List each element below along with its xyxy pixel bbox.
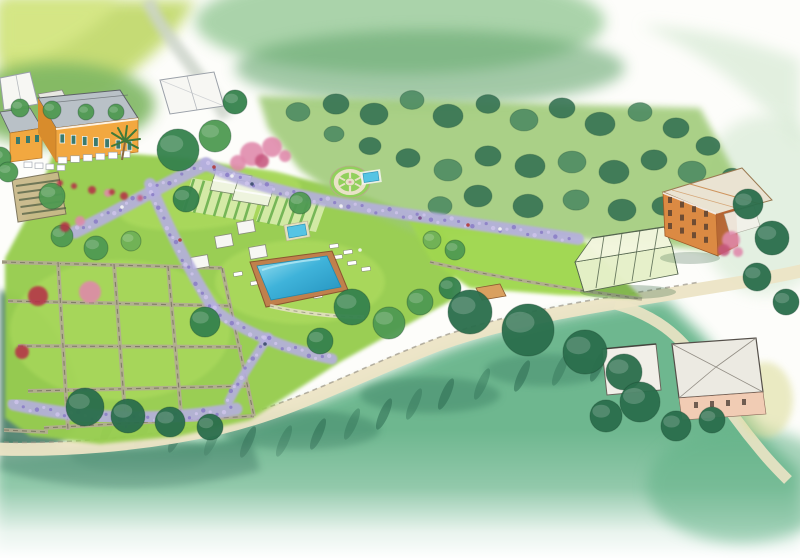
- tree-highlight: [758, 226, 777, 240]
- wisteria-blossom: [75, 225, 79, 229]
- olive-tree: [510, 109, 538, 131]
- wisteria-blossom: [236, 322, 239, 325]
- tree-highlight: [123, 234, 134, 242]
- wisteria-blossom: [107, 211, 110, 214]
- wisteria-blossom: [233, 385, 236, 388]
- flower-shrub: [255, 154, 269, 168]
- olive-tree: [434, 159, 462, 181]
- tree-highlight: [663, 416, 680, 428]
- olive-tree: [696, 137, 720, 156]
- plunge-pool-water: [363, 172, 379, 183]
- plunge-pool-upper: [360, 169, 382, 185]
- wisteria-blossom: [259, 345, 262, 348]
- flower-shrub: [279, 150, 291, 162]
- terrace-awning: [83, 155, 92, 162]
- tree-highlight: [79, 106, 88, 112]
- tree-highlight: [114, 404, 133, 418]
- wisteria-blossom: [255, 336, 258, 339]
- person-dot: [212, 165, 216, 169]
- olive-tree: [678, 161, 706, 183]
- tree-highlight: [775, 293, 789, 303]
- terrace-awning: [58, 157, 67, 164]
- wisteria-blossom: [553, 234, 557, 238]
- wisteria-blossom: [247, 359, 250, 362]
- wisteria-blossom: [181, 259, 184, 262]
- wisteria-blossom: [104, 413, 107, 416]
- wisteria-blossom: [226, 399, 229, 402]
- building-window: [680, 202, 684, 208]
- building-window: [704, 211, 708, 217]
- tree-highlight: [609, 359, 629, 373]
- wisteria-blossom: [197, 289, 200, 292]
- wisteria-blossom: [540, 231, 543, 234]
- flower-shrub: [57, 180, 63, 186]
- terrace-awning: [108, 152, 117, 159]
- flower-shrub: [71, 183, 77, 189]
- wisteria-blossom: [63, 414, 66, 417]
- wisteria-blossom: [148, 183, 152, 187]
- wisteria-blossom: [532, 233, 536, 237]
- building-window: [704, 224, 708, 230]
- wisteria-blossom: [229, 406, 232, 409]
- wisteria-blossom: [294, 346, 297, 349]
- villa-window: [60, 134, 65, 143]
- annex-face: [10, 128, 42, 162]
- wisteria-blossom: [319, 198, 322, 201]
- terrace-awning: [24, 162, 32, 168]
- tree-highlight: [86, 240, 99, 250]
- wisteria-blossom: [248, 332, 252, 336]
- wisteria-blossom: [272, 188, 275, 191]
- wisteria-blossom: [505, 228, 508, 231]
- flower-shrub: [75, 216, 85, 226]
- wisteria-blossom: [42, 406, 45, 409]
- wisteria-blossom: [151, 193, 154, 196]
- wisteria-blossom: [183, 262, 187, 266]
- wisteria-blossom: [162, 181, 165, 184]
- tree-highlight: [199, 418, 213, 428]
- sun-lounger: [347, 260, 356, 265]
- wisteria-blossom: [251, 356, 255, 360]
- tree-highlight: [225, 94, 238, 104]
- person-dot: [498, 227, 502, 231]
- wisteria-blossom: [443, 219, 446, 222]
- wisteria-blossom: [436, 221, 439, 224]
- wisteria-blossom: [519, 228, 522, 231]
- olive-tree: [433, 104, 463, 127]
- wisteria-blossom: [88, 225, 91, 228]
- wisteria-blossom: [395, 211, 398, 214]
- wisteria-blossom: [195, 412, 198, 415]
- wisteria-blossom: [422, 213, 425, 216]
- wisteria-blossom: [14, 400, 18, 404]
- flower-shrub: [733, 247, 743, 257]
- tree-highlight: [623, 388, 645, 404]
- wisteria-blossom: [193, 282, 197, 286]
- tree-highlight: [192, 312, 209, 324]
- terrace-awning: [46, 164, 54, 170]
- wisteria-blossom: [274, 342, 277, 345]
- wisteria-blossom: [408, 215, 412, 219]
- wisteria-blossom: [209, 410, 212, 413]
- person-dot: [358, 248, 362, 252]
- olive-tree: [359, 137, 381, 154]
- tree-highlight: [447, 243, 458, 251]
- tree-highlight: [291, 195, 303, 204]
- wisteria-blossom: [285, 191, 289, 195]
- tree-highlight: [409, 293, 423, 303]
- wisteria-blossom: [229, 389, 233, 393]
- wisteria-blossom: [187, 266, 190, 269]
- olive-tree: [641, 150, 667, 170]
- wisteria-blossom: [367, 208, 371, 212]
- villa-window: [94, 138, 99, 147]
- wisteria-blossom: [245, 181, 249, 185]
- wisteria-blossom: [204, 295, 208, 299]
- tree-highlight: [337, 294, 357, 308]
- wisteria-blossom: [307, 354, 311, 358]
- olive-tree: [563, 190, 589, 210]
- wisteria-blossom: [561, 238, 564, 241]
- building-window: [680, 228, 684, 234]
- building-window: [692, 219, 696, 225]
- building-window: [692, 232, 696, 238]
- tree-highlight: [12, 102, 22, 109]
- wisteria-blossom: [143, 196, 146, 199]
- person-dot: [230, 174, 234, 178]
- wisteria-blossom: [55, 412, 59, 416]
- wisteria-blossom: [314, 357, 317, 360]
- building-window: [692, 206, 696, 212]
- olive-tree: [513, 194, 543, 217]
- terrace-awning: [35, 163, 43, 169]
- flower-shrub: [230, 155, 246, 171]
- terrace-awning: [96, 153, 105, 160]
- tree-highlight: [175, 190, 189, 200]
- wisteria-blossom: [190, 272, 193, 275]
- person-dot: [120, 205, 124, 209]
- wisteria-blossom: [265, 182, 269, 186]
- wisteria-blossom: [201, 408, 205, 412]
- wisteria-blossom: [225, 173, 229, 177]
- tree-highlight: [441, 280, 453, 289]
- wisteria-blossom: [259, 183, 262, 186]
- olive-tree: [599, 160, 629, 183]
- tree-highlight: [735, 194, 752, 206]
- person-dot: [263, 342, 267, 346]
- olive-tree: [558, 151, 586, 173]
- olive-tree: [323, 94, 349, 114]
- olive-tree: [585, 112, 615, 135]
- olive-tree: [360, 103, 388, 125]
- building-window: [668, 210, 672, 216]
- wisteria-blossom: [156, 205, 160, 209]
- wisteria-blossom: [416, 213, 419, 216]
- terrace-awning: [57, 165, 65, 171]
- tree-highlight: [44, 104, 54, 111]
- tree-highlight: [109, 106, 118, 112]
- wisteria-blossom: [485, 222, 488, 225]
- wisteria-blossom: [255, 353, 258, 356]
- olive-tree: [400, 91, 424, 110]
- terrace-awning: [71, 156, 80, 163]
- wisteria-blossom: [219, 173, 222, 176]
- olive-tree: [286, 103, 310, 122]
- wisteria-blossom: [313, 200, 316, 203]
- wisteria-blossom: [387, 207, 391, 211]
- parterre-center-dot: [348, 181, 351, 184]
- wisteria-blossom: [267, 336, 271, 340]
- wisteria-blossom: [168, 233, 171, 236]
- wisteria-blossom: [165, 226, 169, 230]
- flower-shrub: [262, 137, 282, 157]
- wisteria-blossom: [188, 416, 191, 419]
- olive-tree: [608, 199, 636, 221]
- tree-highlight: [745, 267, 760, 278]
- wisteria-blossom: [281, 347, 284, 350]
- wisteria-blossom: [177, 250, 180, 253]
- olive-tree: [663, 118, 689, 138]
- person-dot: [466, 223, 470, 227]
- tree-highlight: [309, 332, 323, 342]
- tree-highlight: [566, 337, 590, 355]
- sun-lounger: [329, 243, 338, 248]
- flower-shrub: [28, 286, 48, 306]
- wisteria-blossom: [301, 349, 304, 352]
- wisteria-blossom: [279, 192, 282, 195]
- olive-tree: [475, 146, 501, 166]
- wisteria-blossom: [491, 226, 495, 230]
- wisteria-blossom: [374, 211, 377, 214]
- building-window: [704, 237, 708, 243]
- sun-lounger: [361, 266, 370, 271]
- olive-tree: [396, 149, 420, 168]
- building-shadow: [660, 252, 720, 264]
- annex-window: [16, 137, 20, 144]
- person-dot: [250, 182, 254, 186]
- person-dot: [178, 238, 182, 242]
- tree-highlight: [451, 297, 475, 315]
- wisteria-blossom: [199, 167, 202, 170]
- wisteria-blossom: [130, 196, 134, 200]
- wisteria-blossom: [239, 376, 243, 380]
- wisteria-blossom: [321, 355, 324, 358]
- tree-highlight: [506, 312, 535, 333]
- wisteria-blossom: [159, 209, 162, 212]
- wisteria-blossom: [402, 216, 405, 219]
- wisteria-blossom: [156, 184, 159, 187]
- wisteria-blossom: [526, 233, 529, 236]
- wisteria-blossom: [174, 179, 177, 182]
- wisteria-blossom: [29, 409, 32, 412]
- flower-shrub: [137, 195, 143, 201]
- top-green-wash-dark: [235, 30, 625, 106]
- annex-window: [35, 135, 39, 142]
- wisteria-blossom: [326, 196, 330, 200]
- wisteria-blossom: [22, 405, 25, 408]
- wisteria-blossom: [242, 326, 245, 329]
- wisteria-blossom: [222, 410, 226, 414]
- flower-shrub: [88, 186, 96, 194]
- wisteria-blossom: [49, 408, 52, 411]
- wisteria-blossom: [333, 201, 336, 204]
- tree-highlight: [160, 135, 183, 152]
- cabana: [215, 234, 234, 249]
- person-dot: [339, 204, 343, 208]
- wisteria-blossom: [547, 231, 550, 234]
- tree-highlight: [424, 234, 434, 241]
- villa-window: [82, 136, 87, 145]
- flower-shrub: [120, 192, 128, 200]
- wisteria-blossom: [568, 237, 571, 240]
- wisteria-blossom: [478, 222, 481, 225]
- wisteria-blossom: [230, 321, 234, 325]
- building-window: [680, 215, 684, 221]
- wisteria-blossom: [125, 202, 128, 205]
- wisteria-blossom: [262, 335, 266, 339]
- tree-highlight: [41, 187, 55, 197]
- cabana: [249, 245, 268, 260]
- wisteria-blossom: [327, 354, 331, 358]
- annex-window: [26, 136, 30, 143]
- wisteria-blossom: [119, 209, 122, 212]
- wisteria-blossom: [381, 209, 384, 212]
- wisteria-blossom: [244, 366, 247, 369]
- sun-lounger: [343, 249, 352, 254]
- olive-tree: [549, 98, 575, 118]
- wisteria-blossom: [470, 224, 474, 228]
- villa-window: [105, 139, 110, 148]
- villa-window: [71, 135, 76, 144]
- wisteria-blossom: [180, 172, 183, 175]
- olive-tree: [515, 154, 545, 177]
- wisteria-blossom: [354, 203, 357, 206]
- flower-shrub: [60, 222, 70, 232]
- olive-tree: [464, 185, 492, 207]
- wisteria-blossom: [429, 218, 433, 222]
- wisteria-blossom: [206, 161, 210, 165]
- wisteria-blossom: [154, 202, 157, 205]
- flower-shrub: [79, 281, 101, 303]
- wisteria-blossom: [512, 225, 516, 229]
- wisteria-blossom: [287, 347, 291, 351]
- wisteria-blossom: [167, 181, 171, 185]
- wisteria-blossom: [239, 176, 242, 179]
- olive-tree: [628, 103, 652, 122]
- tree-highlight: [69, 394, 90, 409]
- person-dot: [418, 216, 422, 220]
- olive-tree: [324, 126, 344, 142]
- wisteria-blossom: [201, 292, 204, 295]
- wisteria-blossom: [112, 211, 116, 215]
- wisteria-blossom: [171, 236, 174, 239]
- wisteria-blossom: [82, 226, 85, 229]
- wisteria-blossom: [346, 205, 350, 209]
- wisteria-blossom: [224, 320, 227, 323]
- flower-shrub: [109, 189, 115, 195]
- wisteria-blossom: [100, 213, 103, 216]
- wisteria-blossom: [162, 216, 165, 219]
- wisteria-blossom: [360, 204, 363, 207]
- wisteria-blossom: [146, 416, 149, 419]
- cabana: [237, 220, 256, 235]
- wisteria-blossom: [236, 383, 239, 386]
- olive-tree: [476, 95, 500, 114]
- wisteria-blossom: [94, 219, 98, 223]
- wisteria-blossom: [449, 216, 453, 220]
- tree-highlight: [592, 405, 610, 418]
- flower-shrub: [718, 244, 730, 256]
- flower-shrub: [15, 345, 29, 359]
- watercolor-estate-illustration: [0, 0, 800, 558]
- tree-highlight: [375, 312, 393, 325]
- tree-highlight: [701, 411, 715, 421]
- wisteria-blossom: [193, 167, 196, 170]
- building-window: [668, 223, 672, 229]
- building-window: [668, 197, 672, 203]
- tree-highlight: [201, 125, 219, 138]
- wisteria-blossom: [457, 220, 460, 223]
- tree-highlight: [0, 165, 11, 173]
- illustration-canvas: [0, 0, 800, 558]
- tree-highlight: [157, 412, 174, 424]
- wisteria-blossom: [174, 240, 178, 244]
- wisteria-blossom: [35, 407, 39, 411]
